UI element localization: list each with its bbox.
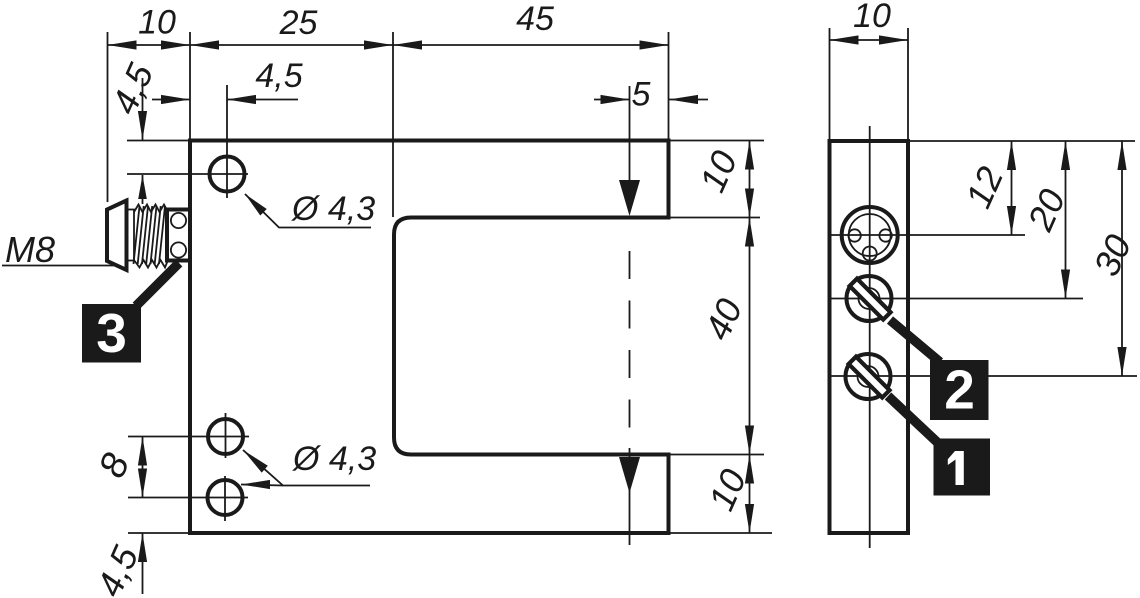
- svg-text:5: 5: [632, 76, 651, 114]
- svg-text:10: 10: [138, 4, 176, 42]
- svg-text:2: 2: [944, 359, 975, 421]
- svg-text:Ø 4,3: Ø 4,3: [292, 440, 376, 478]
- svg-text:M8: M8: [5, 229, 55, 270]
- svg-text:4,5: 4,5: [255, 57, 302, 95]
- svg-text:Ø 4,3: Ø 4,3: [291, 190, 375, 228]
- svg-text:3: 3: [96, 302, 127, 364]
- svg-text:45: 45: [516, 0, 554, 38]
- svg-text:25: 25: [279, 4, 318, 42]
- svg-text:10: 10: [853, 0, 891, 35]
